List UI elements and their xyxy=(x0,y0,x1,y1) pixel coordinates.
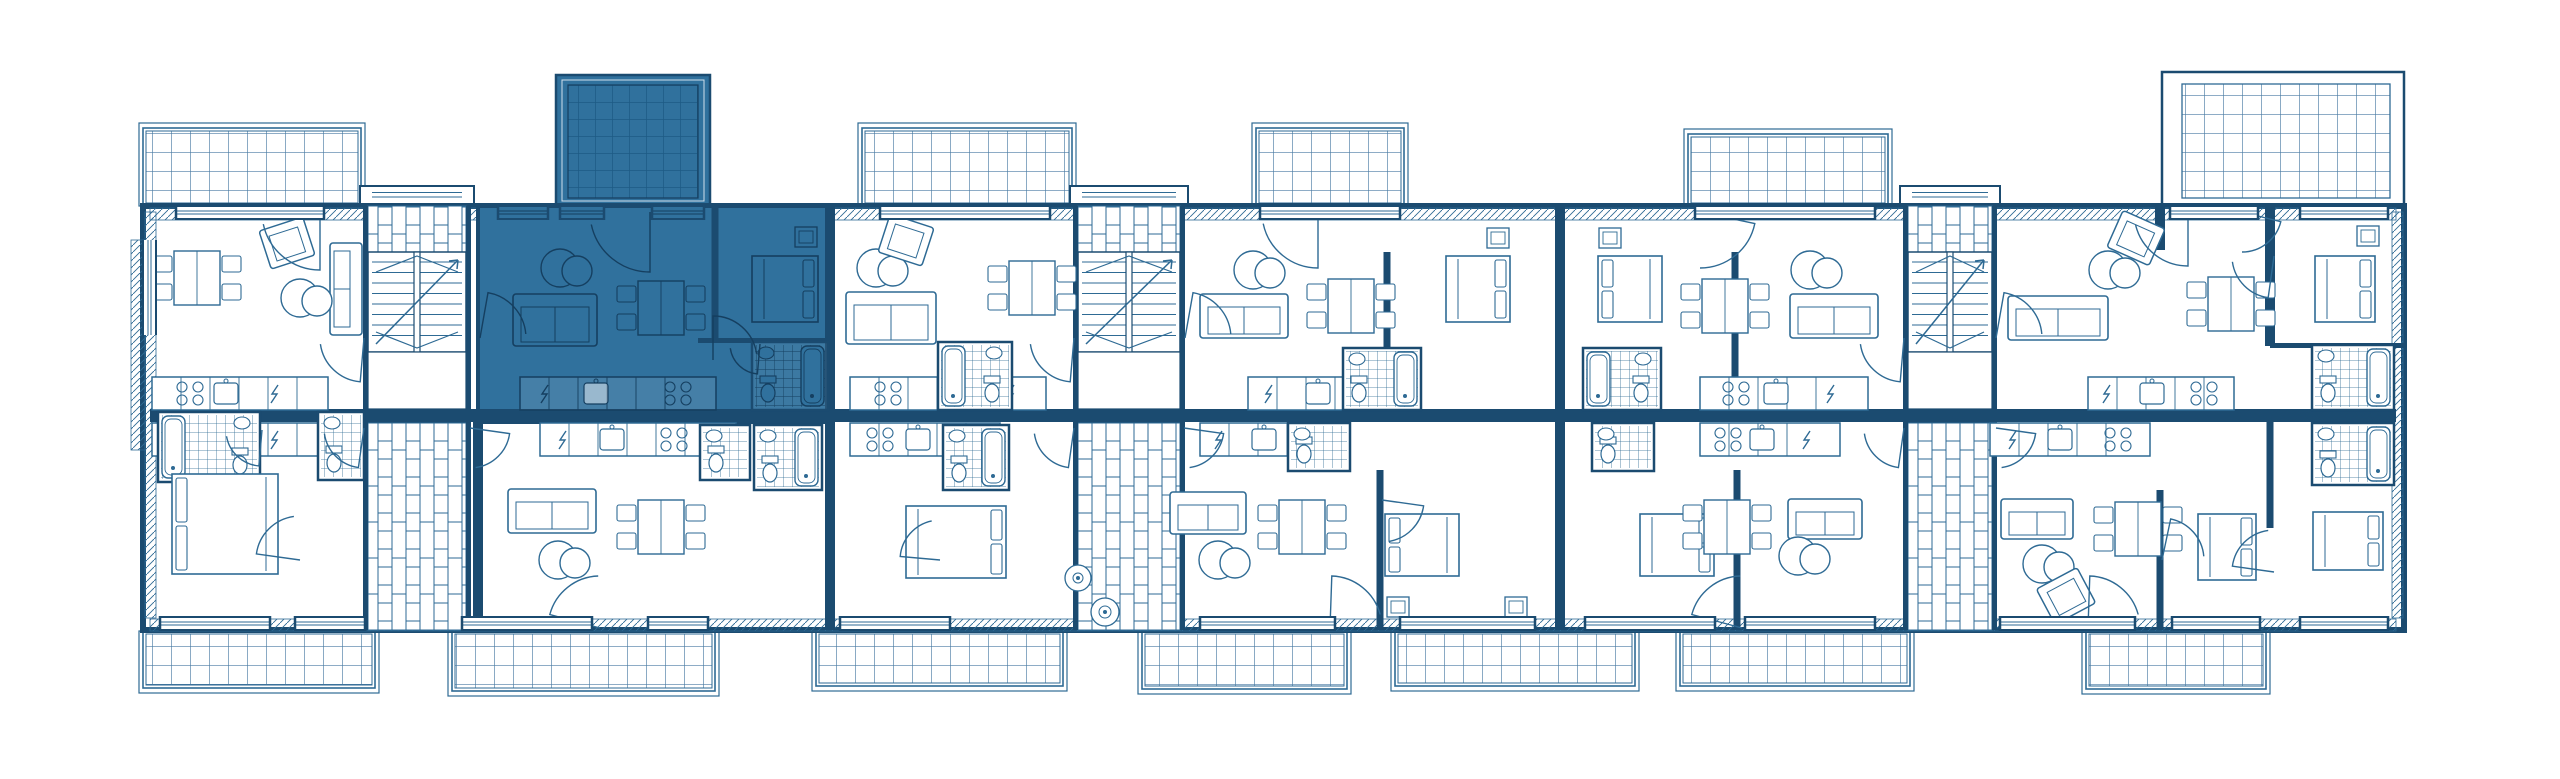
bathroom xyxy=(2312,345,2394,410)
sofa xyxy=(1200,294,1288,338)
window xyxy=(160,616,270,631)
roof-terrace-right xyxy=(2162,72,2404,206)
bed xyxy=(2313,512,2383,570)
sofa xyxy=(1170,492,1246,534)
balcony-bottom-5 xyxy=(1391,631,1639,691)
window xyxy=(560,205,604,220)
bed xyxy=(1640,514,1714,576)
side-table xyxy=(1387,597,1409,617)
side-table xyxy=(1505,597,1527,617)
sofa xyxy=(508,489,596,533)
window xyxy=(142,240,157,335)
window xyxy=(1695,205,1875,220)
sofa xyxy=(1788,499,1862,539)
window xyxy=(1200,616,1335,631)
stair-core-2 xyxy=(1073,206,1185,630)
kitchen-counter xyxy=(152,377,328,410)
window xyxy=(2300,616,2388,631)
window xyxy=(1400,616,1535,631)
window xyxy=(2000,616,2135,631)
balcony-bottom-1 xyxy=(139,631,379,693)
kitchen-counter xyxy=(1700,423,1840,456)
bed xyxy=(1598,256,1662,322)
window xyxy=(652,205,704,220)
side-table xyxy=(2357,226,2379,246)
window xyxy=(295,616,365,631)
balcony-top-2 xyxy=(858,123,1076,206)
window xyxy=(2172,616,2260,631)
sofa xyxy=(330,243,362,335)
window xyxy=(176,205,324,220)
sofa xyxy=(1790,294,1878,338)
bathroom xyxy=(318,412,364,480)
balcony-bottom-4 xyxy=(1138,631,1351,694)
bathroom xyxy=(943,425,1009,490)
bathroom xyxy=(1583,348,1661,410)
side-table xyxy=(1599,228,1621,248)
bathroom xyxy=(700,425,750,480)
bathroom xyxy=(1288,423,1350,471)
window xyxy=(1745,616,1875,631)
floor-plan-drawing xyxy=(0,0,2560,779)
bathroom xyxy=(2312,423,2394,485)
window xyxy=(840,616,950,631)
balcony-bottom-7 xyxy=(2082,631,2270,694)
sofa xyxy=(2001,499,2073,539)
window xyxy=(2170,205,2258,220)
kitchen-counter xyxy=(1990,423,2150,456)
bathroom xyxy=(1343,348,1421,410)
balcony-bottom-3 xyxy=(812,631,1067,691)
balcony-top-3 xyxy=(1252,123,1408,206)
bed xyxy=(1385,514,1459,576)
bed xyxy=(906,506,1006,578)
laundry-machine xyxy=(1091,598,1119,626)
stair-core-3 xyxy=(1903,206,1997,630)
bed xyxy=(1446,256,1510,322)
bed xyxy=(2315,256,2375,322)
window xyxy=(648,616,708,631)
side-table xyxy=(1487,228,1509,248)
sofa xyxy=(846,292,936,344)
stair-core-1 xyxy=(363,206,471,630)
bathroom xyxy=(158,412,260,482)
bathroom xyxy=(752,342,828,410)
bathroom xyxy=(754,425,822,490)
sofa xyxy=(2008,296,2108,340)
kitchen-counter xyxy=(520,377,716,410)
window xyxy=(462,616,592,631)
kitchen-counter xyxy=(2088,377,2234,410)
balcony-top-1 xyxy=(139,123,365,206)
bathroom xyxy=(1592,423,1654,471)
side-table xyxy=(795,227,817,247)
window xyxy=(1260,205,1400,220)
sofa xyxy=(513,294,597,346)
floor-plan-page xyxy=(0,0,2560,779)
laundry-machine xyxy=(1065,565,1091,591)
spine-wall xyxy=(150,409,2396,422)
bed xyxy=(172,474,278,574)
roof-terrace-highlighted[interactable] xyxy=(556,75,710,206)
window xyxy=(2300,205,2388,220)
bed xyxy=(2198,514,2256,580)
bathroom xyxy=(938,342,1012,410)
window xyxy=(498,205,548,220)
window xyxy=(880,205,1050,220)
balcony-bottom-6 xyxy=(1676,631,1914,691)
kitchen-counter xyxy=(1700,377,1868,410)
roof-terraces xyxy=(556,72,2404,206)
balcony-bottom-2 xyxy=(448,631,719,696)
balcony-top-4 xyxy=(1684,129,1892,206)
bed xyxy=(752,256,818,322)
window xyxy=(1585,616,1715,631)
